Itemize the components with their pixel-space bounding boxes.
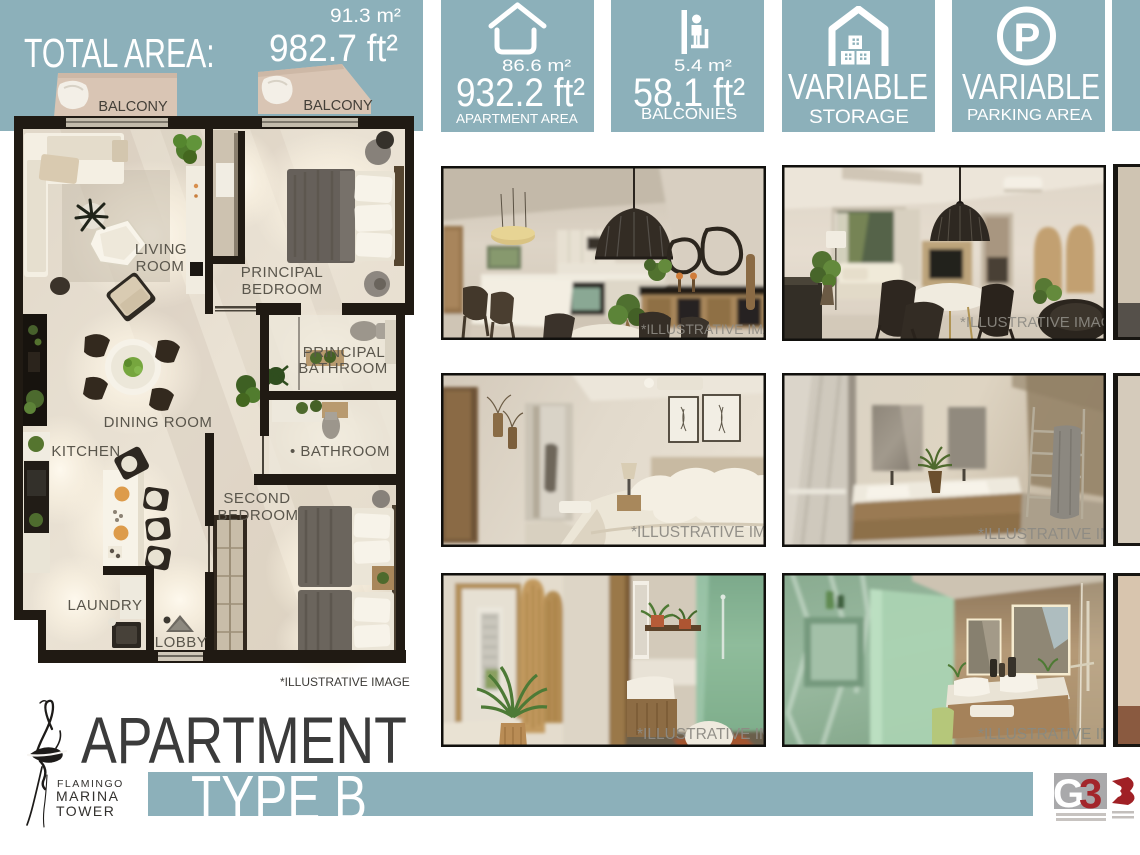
svg-text:P: P xyxy=(1014,16,1041,60)
svg-text:*ILLUSTRATIVE IMAGE: *ILLUSTRATIVE IMAGE xyxy=(631,524,766,541)
svg-text:MARINA: MARINA xyxy=(56,788,119,804)
svg-text:BEDROOM: BEDROOM xyxy=(241,281,322,298)
svg-text:*ILLUSTRATIVE IMAGE: *ILLUSTRATIVE IMAGE xyxy=(978,526,1106,543)
svg-text:KITCHEN: KITCHEN xyxy=(51,443,120,460)
svg-text:TOWER: TOWER xyxy=(56,803,115,819)
svg-text:SECOND: SECOND xyxy=(223,490,290,507)
svg-text:*ILLUSTRATIVE IMAGE: *ILLUSTRATIVE IMAGE xyxy=(960,314,1106,331)
svg-text:DINING ROOM: DINING ROOM xyxy=(104,414,213,431)
svg-text:BALCONY: BALCONY xyxy=(303,98,373,114)
svg-text:*ILLUSTRATIVE IMAGE: *ILLUSTRATIVE IMAGE xyxy=(641,321,766,337)
svg-text:*ILLUSTRATIVE IMAGE: *ILLUSTRATIVE IMAGE xyxy=(978,726,1106,743)
svg-text:*ILLUSTRATIVE IMAG: *ILLUSTRATIVE IMAG xyxy=(637,726,766,743)
svg-text:• BATHROOM: • BATHROOM xyxy=(290,443,390,460)
svg-text:PRINCIPAL: PRINCIPAL xyxy=(241,264,324,281)
svg-text:LAUNDRY: LAUNDRY xyxy=(68,597,143,614)
svg-text:BATHROOM: BATHROOM xyxy=(298,360,388,377)
svg-text:LIVING: LIVING xyxy=(135,241,187,258)
svg-text:BALCONY: BALCONY xyxy=(98,99,168,115)
svg-text:PRINCIPAL: PRINCIPAL xyxy=(303,344,386,361)
svg-text:3: 3 xyxy=(1079,770,1102,817)
svg-text:ROOM: ROOM xyxy=(136,258,185,275)
svg-text:BEDROOM: BEDROOM xyxy=(217,507,298,524)
svg-text:LOBBY: LOBBY xyxy=(155,634,208,651)
